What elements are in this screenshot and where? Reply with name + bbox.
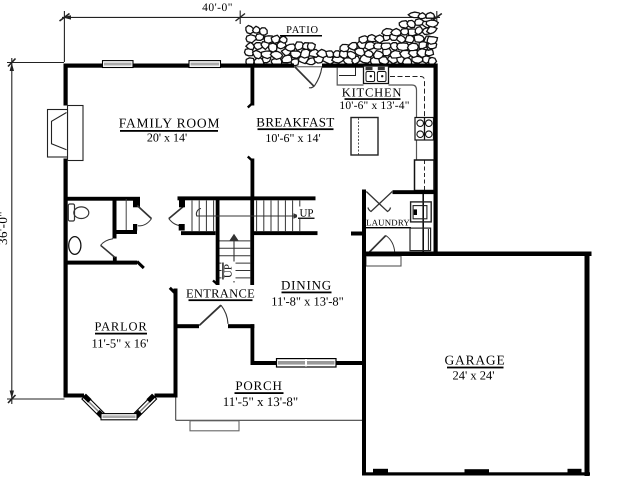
- svg-text:ENTRANCE: ENTRANCE: [186, 287, 255, 301]
- svg-text:GARAGE: GARAGE: [444, 353, 505, 368]
- svg-text:PATIO: PATIO: [286, 25, 319, 36]
- svg-text:11'-5" x 13'-8": 11'-5" x 13'-8": [223, 394, 298, 409]
- svg-text:24' x 24': 24' x 24': [452, 369, 494, 383]
- svg-text:20' x 14': 20' x 14': [147, 131, 187, 145]
- svg-text:10'-6" x 13'-4": 10'-6" x 13'-4": [339, 100, 409, 112]
- svg-text:BREAKFAST: BREAKFAST: [256, 115, 334, 130]
- svg-text:PORCH: PORCH: [235, 378, 282, 393]
- svg-text:UP: UP: [223, 264, 235, 278]
- svg-text:11'-8" x 13'-8": 11'-8" x 13'-8": [271, 295, 344, 309]
- svg-text:40'-0": 40'-0": [202, 2, 233, 14]
- svg-text:PARLOR: PARLOR: [95, 320, 148, 334]
- svg-text:KITCHEN: KITCHEN: [342, 86, 402, 100]
- svg-text:LAUNDRY: LAUNDRY: [366, 218, 410, 228]
- svg-text:11'-5" x 16': 11'-5" x 16': [91, 337, 148, 351]
- svg-text:10'-6" x 14': 10'-6" x 14': [265, 131, 320, 145]
- svg-text:FAMILY ROOM: FAMILY ROOM: [119, 116, 221, 131]
- svg-text:36'-0": 36'-0": [0, 211, 10, 245]
- svg-text:DINING: DINING: [281, 278, 332, 293]
